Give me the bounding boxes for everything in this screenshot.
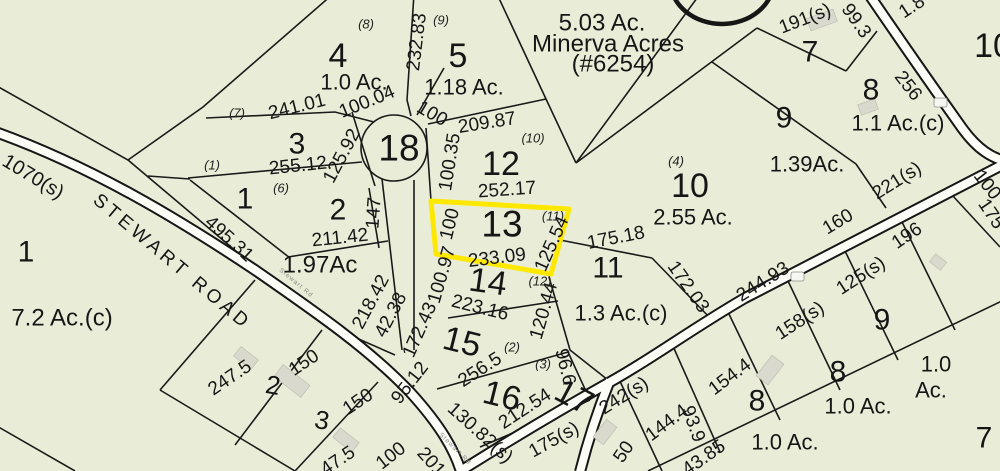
- ref-lot5: (9): [433, 13, 449, 28]
- acreage-lot9-north: 1.39Ac.: [770, 152, 845, 177]
- plat-map-svg: 5.03 Ac. Minerva Acres (#6254) STEWART R…: [0, 0, 1000, 471]
- ref-lot2: (6): [273, 181, 289, 196]
- parcel-map: 5.03 Ac. Minerva Acres (#6254) STEWART R…: [0, 0, 1000, 471]
- parcel-number-10: 10: [671, 167, 709, 205]
- parcel-number-12: 12: [482, 145, 520, 183]
- parcel-number-8-mid: 8: [830, 356, 847, 389]
- ref-lot16: (3): [535, 357, 551, 372]
- acreage-lot8-north: 1.1 Ac.(c): [852, 111, 945, 136]
- acreage-parcel-west: 7.2 Ac.(c): [11, 305, 112, 332]
- parcel-number-10-edge: 10: [974, 27, 1000, 65]
- parcel-number-8-north: 8: [863, 74, 880, 107]
- parcel-number-1-west: 1: [18, 236, 35, 269]
- parcel-number-7-north: 7: [802, 36, 819, 69]
- dim-252-17: 252.17: [477, 177, 536, 202]
- parcel-number-2: 2: [330, 194, 347, 227]
- ref-lot15: (2): [504, 340, 520, 355]
- parcel-number-18: 18: [378, 128, 419, 169]
- route-marker-chip: [791, 272, 804, 281]
- ref-lot12: (10): [521, 131, 544, 146]
- acreage-lot1: 1.97Ac: [283, 252, 358, 279]
- acreage-lot11: 1.3 Ac.(c): [575, 301, 668, 326]
- ref-lot10: (4): [668, 154, 684, 169]
- acreage-lot8-south: 1.0 Ac.: [751, 430, 818, 455]
- acreage-lot9-south-line1: 1.0: [921, 352, 952, 377]
- ref-lot3: (7): [229, 106, 245, 121]
- parcel-number-1: 1: [237, 183, 254, 216]
- parcel-number-9-north: 9: [776, 102, 793, 135]
- parcel-number-9-south: 9: [874, 304, 891, 337]
- acreage-lot10: 2.55 Ac.: [653, 205, 733, 230]
- route-marker-chip: [934, 98, 947, 107]
- ref-lot1: (1): [204, 158, 220, 173]
- parcel-number-13-selected[interactable]: 13: [481, 204, 522, 245]
- parcel-number-8-south: 8: [749, 385, 766, 418]
- parcel-number-11: 11: [592, 252, 623, 285]
- parcel-number-7-south: 7: [976, 422, 993, 455]
- ref-lot4: (8): [358, 17, 374, 32]
- parcel-number-5: 5: [449, 37, 468, 75]
- subdivision-plat-number: (#6254): [572, 51, 655, 78]
- acreage-lot5: 1.18 Ac.: [424, 75, 504, 100]
- acreage-lot8-mid: 1.0 Ac.: [824, 394, 891, 419]
- acreage-lot9-south-line2: Ac.: [915, 378, 947, 403]
